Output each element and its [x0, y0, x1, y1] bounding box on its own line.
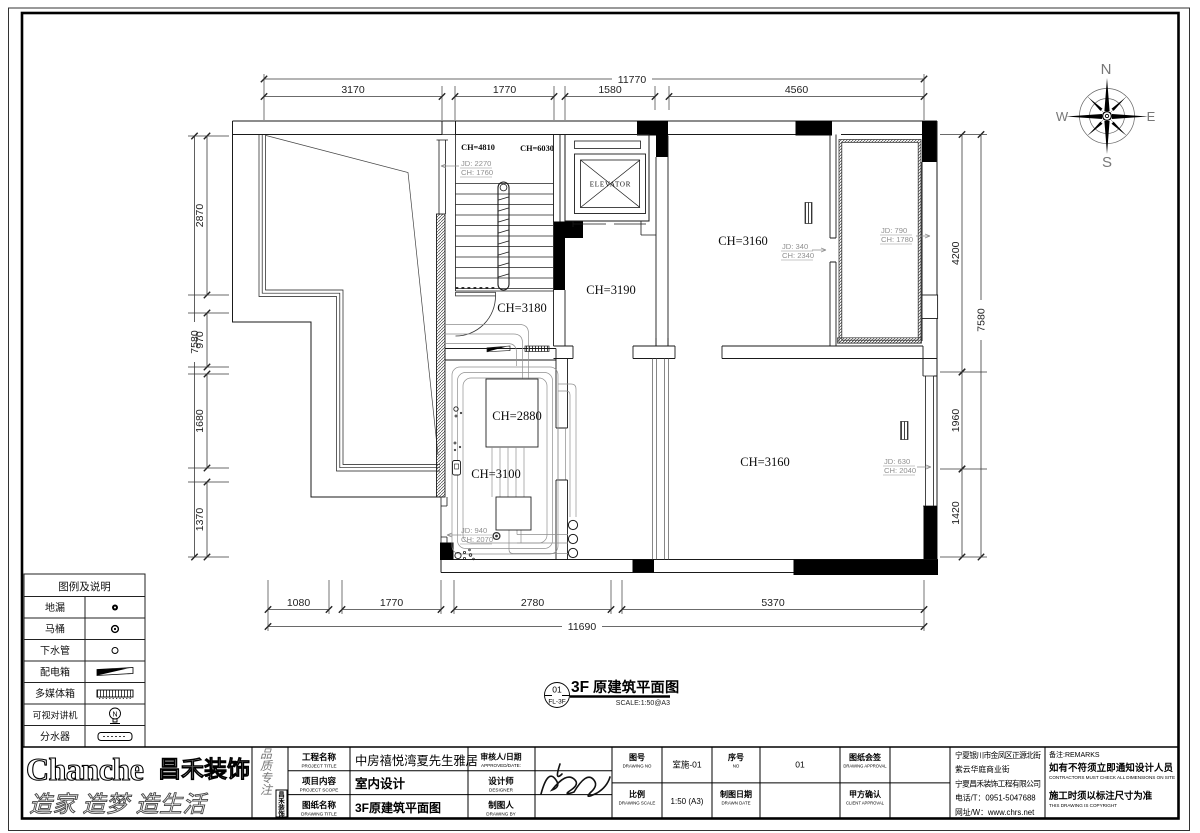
- svg-text:1770: 1770: [380, 597, 404, 609]
- svg-text:设计师: 设计师: [488, 776, 514, 786]
- svg-text:CH=3190: CH=3190: [586, 283, 635, 297]
- svg-text:分水器: 分水器: [40, 731, 70, 743]
- svg-text:配电箱: 配电箱: [40, 666, 70, 679]
- svg-text:N: N: [1101, 61, 1112, 78]
- svg-text:APPROVED/DATE:: APPROVED/DATE:: [481, 763, 521, 768]
- svg-text:CH: 2040: CH: 2040: [884, 466, 916, 475]
- svg-text:CH=2880: CH=2880: [492, 409, 541, 423]
- svg-text:SCALE:1:50@A3: SCALE:1:50@A3: [616, 700, 670, 707]
- svg-text:序号: 序号: [728, 752, 744, 762]
- svg-text:01: 01: [552, 685, 562, 695]
- svg-text:CH: 2340: CH: 2340: [782, 251, 814, 260]
- svg-text:01: 01: [795, 760, 805, 770]
- svg-text:1770: 1770: [493, 84, 517, 96]
- svg-text:中房禧悦湾夏先生雅居: 中房禧悦湾夏先生雅居: [355, 753, 478, 768]
- svg-text:DRAWING NO: DRAWING NO: [623, 764, 652, 769]
- svg-text:DRAWING SCALE: DRAWING SCALE: [619, 801, 656, 806]
- svg-text:CLIENT APPROVAL: CLIENT APPROVAL: [846, 801, 885, 806]
- svg-text:图纸会签: 图纸会签: [849, 752, 882, 762]
- svg-text:PROJECT SCOPE: PROJECT SCOPE: [300, 788, 339, 793]
- svg-text:原建筑平面图: 原建筑平面图: [593, 679, 679, 696]
- svg-text:5370: 5370: [761, 597, 785, 609]
- svg-text:CH=3180: CH=3180: [497, 301, 546, 315]
- svg-text:CH: 1780: CH: 1780: [881, 235, 913, 244]
- svg-text:造家 造梦 造生活: 造家 造梦 造生活: [29, 792, 209, 817]
- svg-text:比例: 比例: [629, 789, 645, 799]
- svg-text:2870: 2870: [194, 204, 206, 228]
- svg-text:工程名称: 工程名称: [302, 752, 337, 762]
- svg-text:DRAWING TITLE: DRAWING TITLE: [301, 812, 337, 817]
- svg-text:可视对讲机: 可视对讲机: [32, 710, 77, 721]
- svg-text:1680: 1680: [194, 409, 206, 433]
- svg-text:DRAWING APPROVAL: DRAWING APPROVAL: [843, 764, 887, 769]
- svg-text:图纸名称: 图纸名称: [302, 800, 337, 810]
- svg-text:4560: 4560: [785, 84, 809, 96]
- svg-text:PROJECT TITLE: PROJECT TITLE: [301, 764, 336, 769]
- svg-text:DESIGNER: DESIGNER: [489, 788, 514, 793]
- svg-text:DRAWING BY: DRAWING BY: [486, 812, 515, 817]
- svg-text:DRAWN DATE: DRAWN DATE: [721, 801, 750, 806]
- svg-text:1370: 1370: [194, 508, 206, 532]
- svg-text:马桶: 马桶: [45, 623, 65, 636]
- svg-text:备注:REMARKS: 备注:REMARKS: [1049, 750, 1100, 759]
- svg-text:CH=4810: CH=4810: [461, 143, 495, 152]
- svg-text:下水管: 下水管: [40, 644, 70, 657]
- svg-text:1080: 1080: [287, 597, 311, 609]
- svg-text:制图日期: 制图日期: [720, 789, 752, 799]
- svg-text:JD: 940: JD: 940: [461, 526, 487, 535]
- svg-text:N: N: [112, 712, 117, 719]
- svg-text:11770: 11770: [618, 74, 647, 86]
- svg-text:紫云华庭商业街: 紫云华庭商业街: [955, 764, 1010, 774]
- svg-text:JD: 2270: JD: 2270: [461, 159, 491, 168]
- svg-text:3F: 3F: [571, 679, 589, 696]
- svg-text:地漏: 地漏: [45, 601, 65, 614]
- svg-text:FL-3F: FL-3F: [548, 699, 565, 706]
- svg-text:JD: 340: JD: 340: [782, 242, 808, 251]
- svg-text:4200: 4200: [950, 241, 962, 265]
- svg-text:CH=3160: CH=3160: [718, 234, 767, 248]
- svg-text:CONTRACTORS MUST CHECK ALL DIM: CONTRACTORS MUST CHECK ALL DIMENSIONS ON…: [1049, 775, 1175, 780]
- svg-text:施工时须以标注尺寸为准: 施工时须以标注尺寸为准: [1048, 790, 1153, 801]
- svg-text:S: S: [1102, 154, 1112, 171]
- svg-text:甲方确认: 甲方确认: [849, 789, 882, 799]
- svg-text:CH: 1760: CH: 1760: [461, 168, 493, 177]
- svg-text:注: 注: [260, 783, 274, 797]
- svg-text:NO: NO: [733, 764, 740, 769]
- svg-text:网址/W：www.chrs.net: 网址/W：www.chrs.net: [955, 807, 1035, 817]
- svg-text:Chanche: Chanche: [26, 751, 144, 787]
- svg-text:JD: 790: JD: 790: [881, 226, 907, 235]
- svg-text:11690: 11690: [568, 621, 597, 633]
- svg-text:7580: 7580: [976, 308, 988, 332]
- svg-text:图例及说明: 图例及说明: [58, 580, 111, 593]
- svg-text:审核人/日期: 审核人/日期: [480, 752, 521, 762]
- svg-text:1:50 (A3): 1:50 (A3): [671, 797, 704, 806]
- svg-text:ELEVATOR: ELEVATOR: [590, 181, 632, 189]
- svg-text:宁夏昌禾装饰工程有限公司: 宁夏昌禾装饰工程有限公司: [955, 778, 1041, 788]
- svg-text:制图人: 制图人: [488, 800, 514, 810]
- svg-text:CH=6030: CH=6030: [520, 144, 554, 153]
- svg-text:W: W: [1056, 109, 1069, 124]
- svg-text:3170: 3170: [341, 84, 365, 96]
- svg-text:电话/T：0951-5047688: 电话/T：0951-5047688: [955, 793, 1036, 803]
- svg-text:1960: 1960: [950, 409, 962, 433]
- svg-text:图号: 图号: [629, 753, 645, 762]
- svg-text:昌禾装饰: 昌禾装饰: [158, 756, 250, 782]
- svg-text:多媒体箱: 多媒体箱: [35, 687, 75, 700]
- svg-text:E: E: [1147, 109, 1156, 124]
- svg-text:项目内容: 项目内容: [302, 776, 337, 786]
- svg-text:CH=3160: CH=3160: [740, 455, 789, 469]
- svg-text:970: 970: [194, 331, 206, 349]
- svg-text:2780: 2780: [521, 597, 545, 609]
- svg-text:1580: 1580: [598, 84, 622, 96]
- svg-text:JD: 630: JD: 630: [884, 457, 910, 466]
- svg-text:3F原建筑平面图: 3F原建筑平面图: [355, 800, 441, 815]
- svg-text:宁夏银川市金凤区正源北街: 宁夏银川市金凤区正源北街: [955, 750, 1041, 760]
- svg-text:CH: 2070: CH: 2070: [461, 535, 493, 544]
- svg-text:室内设计: 室内设计: [355, 776, 406, 791]
- svg-text:如有不符须立即通知设计人员: 如有不符须立即通知设计人员: [1049, 762, 1174, 773]
- svg-text:THIS DRAWING IS COPYRIGHT: THIS DRAWING IS COPYRIGHT: [1049, 803, 1117, 808]
- svg-text:室施-01: 室施-01: [672, 760, 702, 770]
- svg-text:CH=3100: CH=3100: [471, 467, 520, 481]
- svg-text:1420: 1420: [950, 501, 962, 525]
- svg-text:饰: 饰: [278, 809, 285, 818]
